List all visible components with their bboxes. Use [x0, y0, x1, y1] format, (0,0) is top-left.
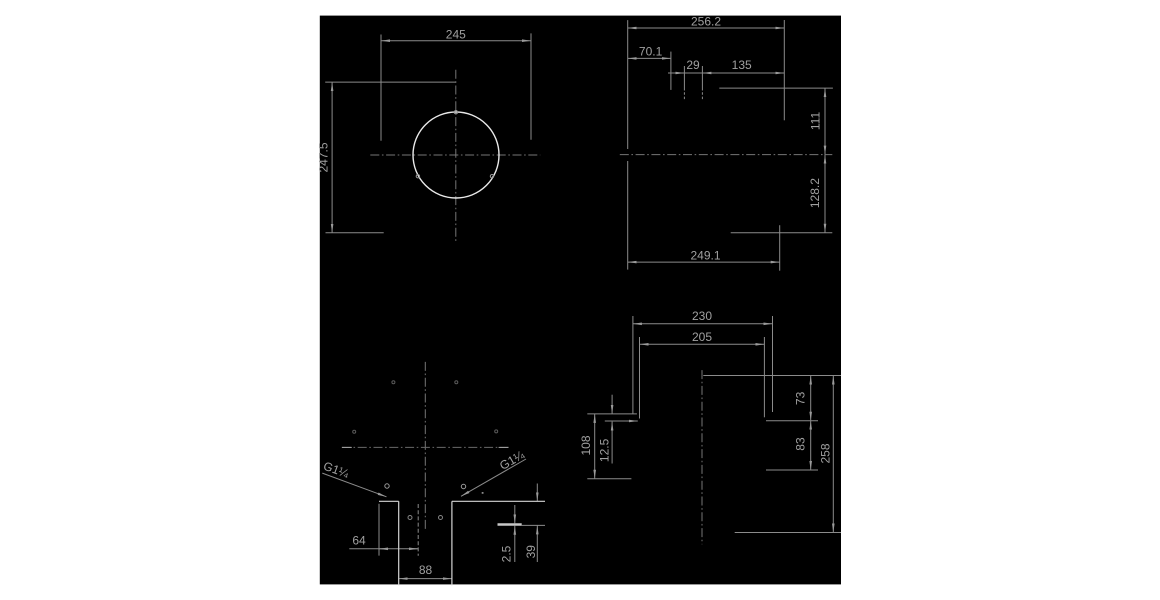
svg-text:205: 205	[692, 330, 712, 344]
svg-text:128.2: 128.2	[808, 178, 822, 208]
svg-text:83: 83	[794, 437, 808, 451]
svg-text:245: 245	[446, 28, 466, 42]
svg-text:230: 230	[692, 309, 712, 323]
svg-text:249.1: 249.1	[690, 249, 720, 263]
svg-text:70.1: 70.1	[639, 45, 663, 59]
svg-text:258: 258	[818, 443, 832, 463]
svg-text:64: 64	[352, 534, 366, 548]
svg-text:108: 108	[579, 435, 593, 455]
svg-text:39: 39	[524, 545, 538, 559]
svg-text:2.5: 2.5	[499, 545, 513, 562]
svg-text:247.5: 247.5	[317, 142, 331, 172]
svg-text:256.2: 256.2	[691, 14, 721, 28]
svg-text:29: 29	[686, 58, 700, 72]
svg-text:12.5: 12.5	[597, 438, 611, 462]
svg-text:111: 111	[809, 112, 823, 131]
svg-text:88: 88	[419, 563, 433, 577]
svg-text:73: 73	[794, 391, 808, 405]
svg-text:135: 135	[732, 58, 752, 72]
